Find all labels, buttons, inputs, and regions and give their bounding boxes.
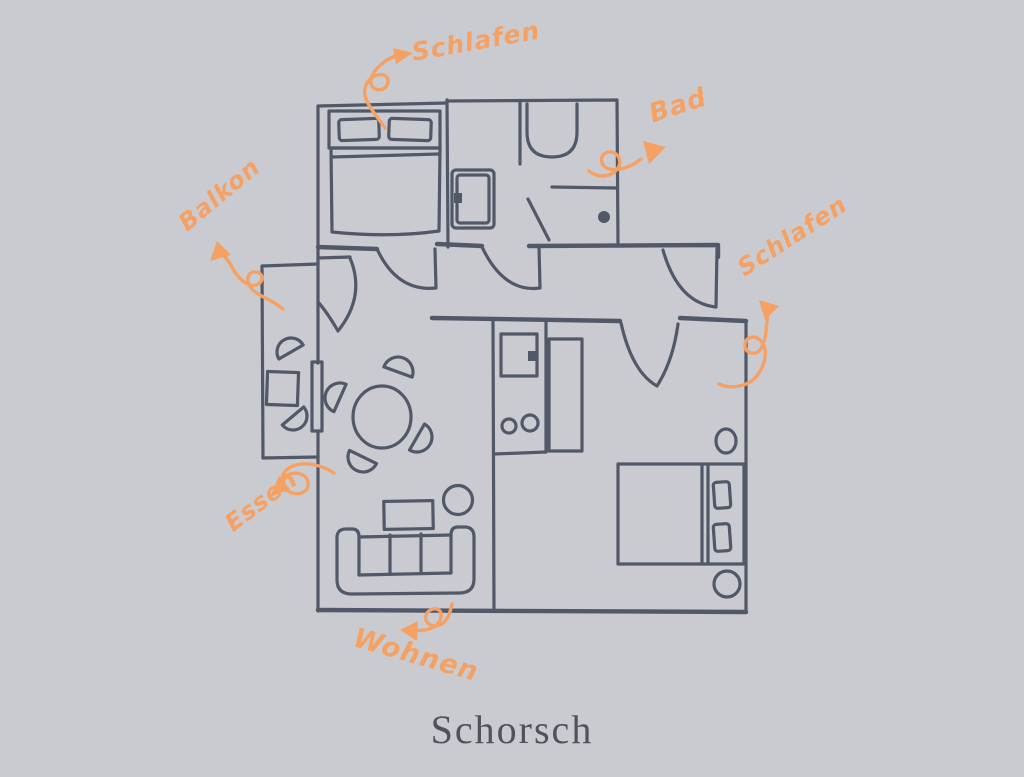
arrow-to-balkon-icon (210, 241, 283, 309)
door-swing-icon (378, 249, 436, 288)
sofa-set (337, 486, 474, 595)
nightstand-icon (714, 571, 740, 597)
door-leaf-icon (528, 199, 549, 240)
door-swing-icon (621, 323, 678, 386)
shower-handle-icon (598, 211, 610, 223)
side-table-icon (444, 486, 473, 515)
chair-icon (320, 378, 346, 412)
balcony-door-icon (312, 362, 322, 431)
floor-plan-page: Schlafen Bad Balkon Schlafen Essen Wohne… (0, 0, 1024, 777)
arrow-to-schlafen-right-icon (719, 300, 779, 387)
door-swing-icon (663, 249, 717, 307)
pillow-icon (389, 118, 432, 140)
page-title: Schorsch (0, 706, 1024, 753)
chair-icon (384, 353, 417, 377)
balcony-table-icon (266, 371, 298, 405)
walls (262, 100, 746, 612)
chair-icon (343, 450, 377, 477)
wardrobe-icon (549, 339, 582, 451)
arrow-to-schlafen-top-icon (365, 48, 413, 128)
arrow-to-bad-icon (589, 141, 666, 176)
kitchen-counter-icon (501, 334, 538, 433)
coffee-table-icon (384, 501, 433, 530)
chair-icon (282, 407, 312, 436)
washing-machine-icon (452, 170, 494, 228)
double-bed-icon (618, 429, 744, 597)
shower-icon (552, 187, 617, 188)
balcony-furniture (266, 333, 312, 436)
bathtub-icon (527, 104, 577, 157)
pillow-icon (713, 523, 731, 551)
round-dining-table-icon (320, 353, 437, 477)
chair-icon (410, 424, 438, 457)
pillow-icon (713, 481, 731, 508)
stove-burners-icon (502, 419, 516, 433)
floor-plan-drawing (0, 0, 1024, 777)
nightstand-icon (716, 429, 736, 453)
door-swing-icon (482, 247, 540, 288)
stove-burners-icon (522, 415, 538, 431)
pillow-icon (339, 118, 380, 140)
door-swing-icon (318, 258, 356, 331)
chair-icon (272, 333, 303, 359)
